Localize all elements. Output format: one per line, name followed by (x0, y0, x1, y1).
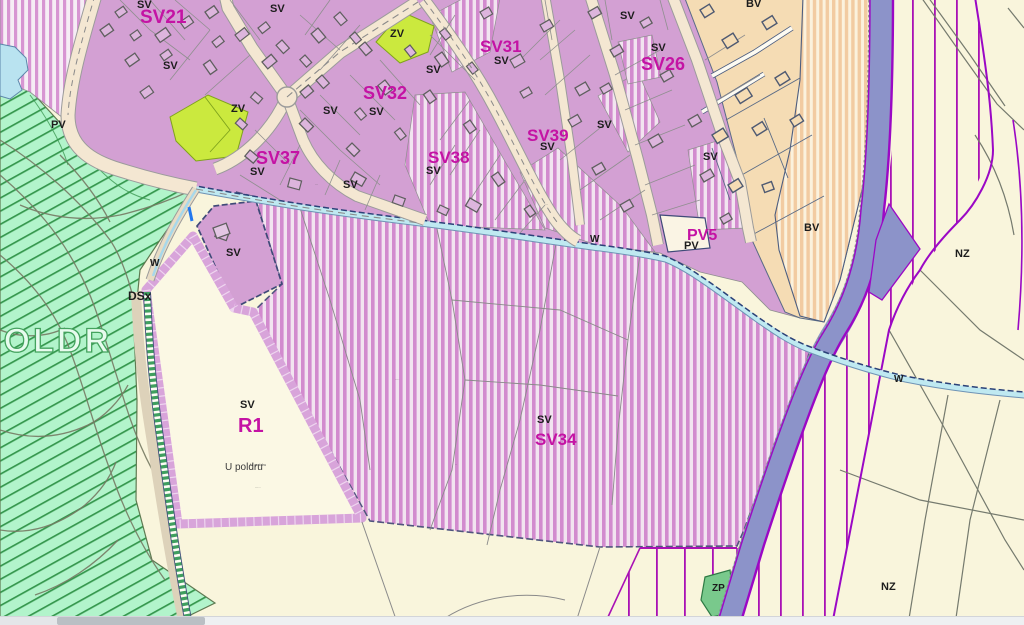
svg-text:SV: SV (240, 399, 255, 411)
svg-text:SV: SV (163, 60, 178, 72)
svg-text:NZ: NZ (881, 581, 896, 593)
svg-text:R1: R1 (238, 415, 264, 437)
svg-text:...: ... (315, 181, 318, 186)
svg-text:SV: SV (620, 10, 635, 22)
svg-text:SV: SV (369, 106, 384, 118)
svg-text:SV: SV (597, 119, 612, 131)
svg-text:PV: PV (684, 240, 699, 252)
svg-text:SV: SV (651, 42, 666, 54)
svg-text:SV: SV (137, 0, 152, 11)
svg-text:SV: SV (537, 414, 552, 426)
svg-text:U poldru: U poldru (225, 462, 263, 473)
svg-text:SV: SV (703, 151, 718, 163)
svg-text:BV: BV (804, 222, 820, 234)
svg-text:SV: SV (323, 105, 338, 117)
svg-text:SV: SV (343, 179, 358, 191)
svg-text:SV37: SV37 (256, 148, 300, 168)
svg-text:W: W (590, 234, 600, 245)
svg-text:BV: BV (746, 0, 762, 10)
svg-text:SV34: SV34 (535, 430, 577, 449)
svg-text:SV: SV (426, 165, 441, 177)
svg-text:SV: SV (270, 3, 285, 15)
svg-text:ZV: ZV (390, 28, 405, 40)
svg-text:DSx: DSx (128, 289, 152, 303)
svg-text:SV: SV (226, 247, 241, 259)
svg-text:SV: SV (426, 64, 441, 76)
svg-text:SV31: SV31 (480, 37, 522, 56)
svg-text:W: W (150, 258, 160, 269)
svg-text:SV: SV (494, 55, 509, 67)
svg-text:SV: SV (540, 141, 555, 153)
svg-text:PV: PV (51, 119, 66, 131)
svg-text:SV32: SV32 (363, 83, 407, 103)
svg-text:POLDR: POLDR (0, 322, 112, 360)
svg-text:W: W (894, 374, 904, 385)
svg-text:ZP: ZP (712, 583, 725, 594)
svg-text:NZ: NZ (955, 248, 970, 260)
svg-text:.....: ..... (255, 484, 261, 489)
svg-text:...: ... (545, 201, 548, 206)
svg-text:....: .... (395, 376, 399, 381)
svg-text:SV: SV (250, 166, 265, 178)
svg-text:SV26: SV26 (641, 54, 685, 74)
svg-text:..: .. (455, 461, 457, 466)
svg-text:ZV: ZV (231, 103, 246, 115)
